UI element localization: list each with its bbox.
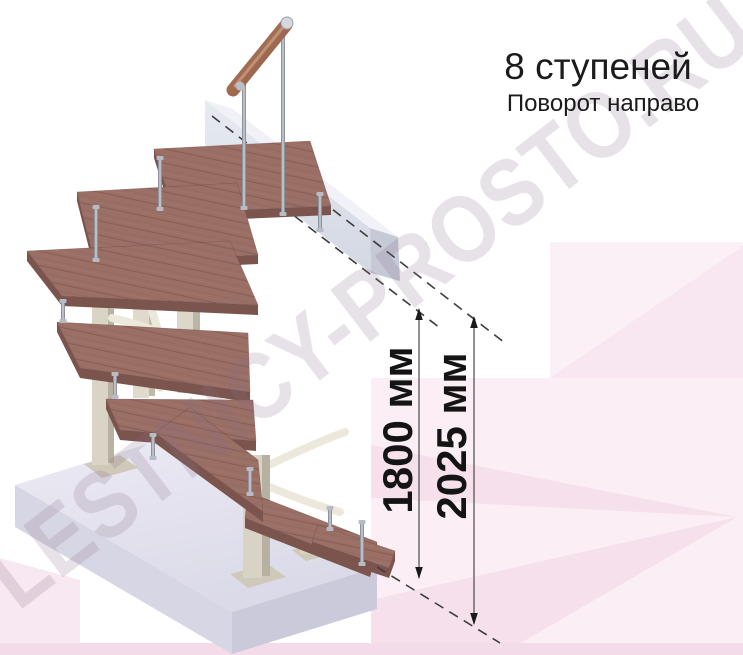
title-block: 8 ступеней Поворот направо [504, 46, 699, 117]
handrail-end-cap [281, 17, 293, 29]
page-title: 8 ступеней [504, 46, 692, 87]
dimension-label-2025: 2025 мм [428, 352, 475, 519]
dimension-label-1800: 1800 мм [374, 346, 421, 513]
baluster [60, 299, 67, 323]
staircase-diagram: LESTNICY-PROSTO.RU 1800 мм 2025 мм 8 сту… [0, 0, 743, 655]
baluster [327, 506, 334, 531]
page-subtitle: Поворот направо [507, 90, 699, 117]
staircase-illustration: LESTNICY-PROSTO.RU 1800 мм 2025 мм 8 сту… [0, 0, 743, 655]
pink-strip-bottom [0, 643, 743, 655]
handrail-fitting [236, 82, 245, 91]
